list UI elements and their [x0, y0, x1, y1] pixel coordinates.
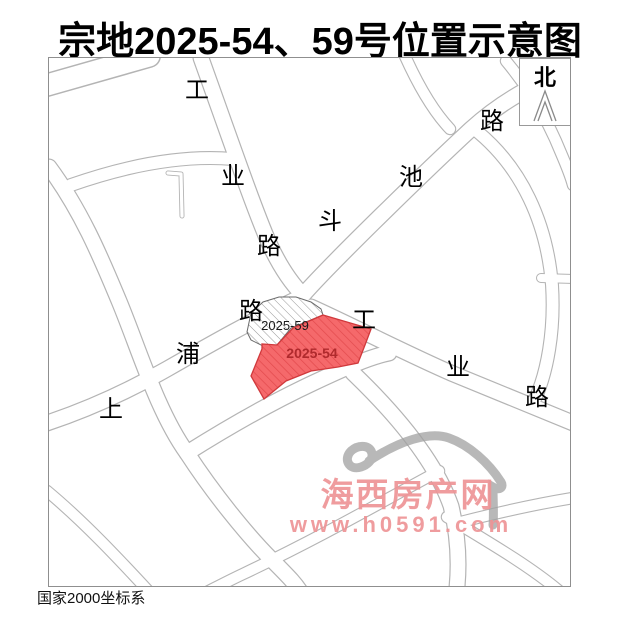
parcel-2025-59-label: 2025-59 [261, 318, 309, 333]
map-frame: 2025-59 2025-54 工 业 路 斗 池 路 上 浦 路 工 业 路 … [48, 57, 571, 587]
map-canvas: 2025-59 2025-54 工 业 路 斗 池 路 上 浦 路 工 业 路 … [49, 58, 570, 586]
road-label-douchi-2: 池 [399, 164, 423, 191]
road-label-douchi-1: 斗 [318, 208, 342, 235]
road-path [405, 58, 450, 129]
north-label: 北 [534, 65, 556, 90]
road-label-shangpu-3: 路 [239, 298, 263, 325]
watermark-site-url: www.h0591.com [289, 512, 512, 537]
road-label-gongye-north-1: 工 [185, 77, 209, 104]
road-path [49, 491, 153, 586]
coordinate-system-note: 国家2000坐标系 [37, 587, 145, 608]
road-label-shangpu-2: 浦 [176, 341, 200, 368]
road-label-gongye-east-1: 工 [352, 307, 376, 334]
road-label-shangpu-1: 上 [99, 396, 123, 423]
road-label-gongye-north-2: 业 [221, 163, 245, 190]
road-path [541, 278, 570, 279]
page: { "title": "宗地2025-54、59号位置示意图", "north"… [0, 0, 640, 624]
north-indicator: 北 [520, 59, 571, 126]
parcel-2025-54-label: 2025-54 [286, 345, 338, 361]
road-label-gongye-north-3: 路 [257, 233, 281, 260]
watermark-site-name: 海西房产网 [321, 476, 496, 513]
road-label-gongye-east-3: 路 [525, 384, 549, 411]
road-path [71, 158, 233, 185]
road-label-gongye-east-2: 业 [446, 354, 470, 381]
road-label-douchi-3: 路 [480, 108, 504, 135]
